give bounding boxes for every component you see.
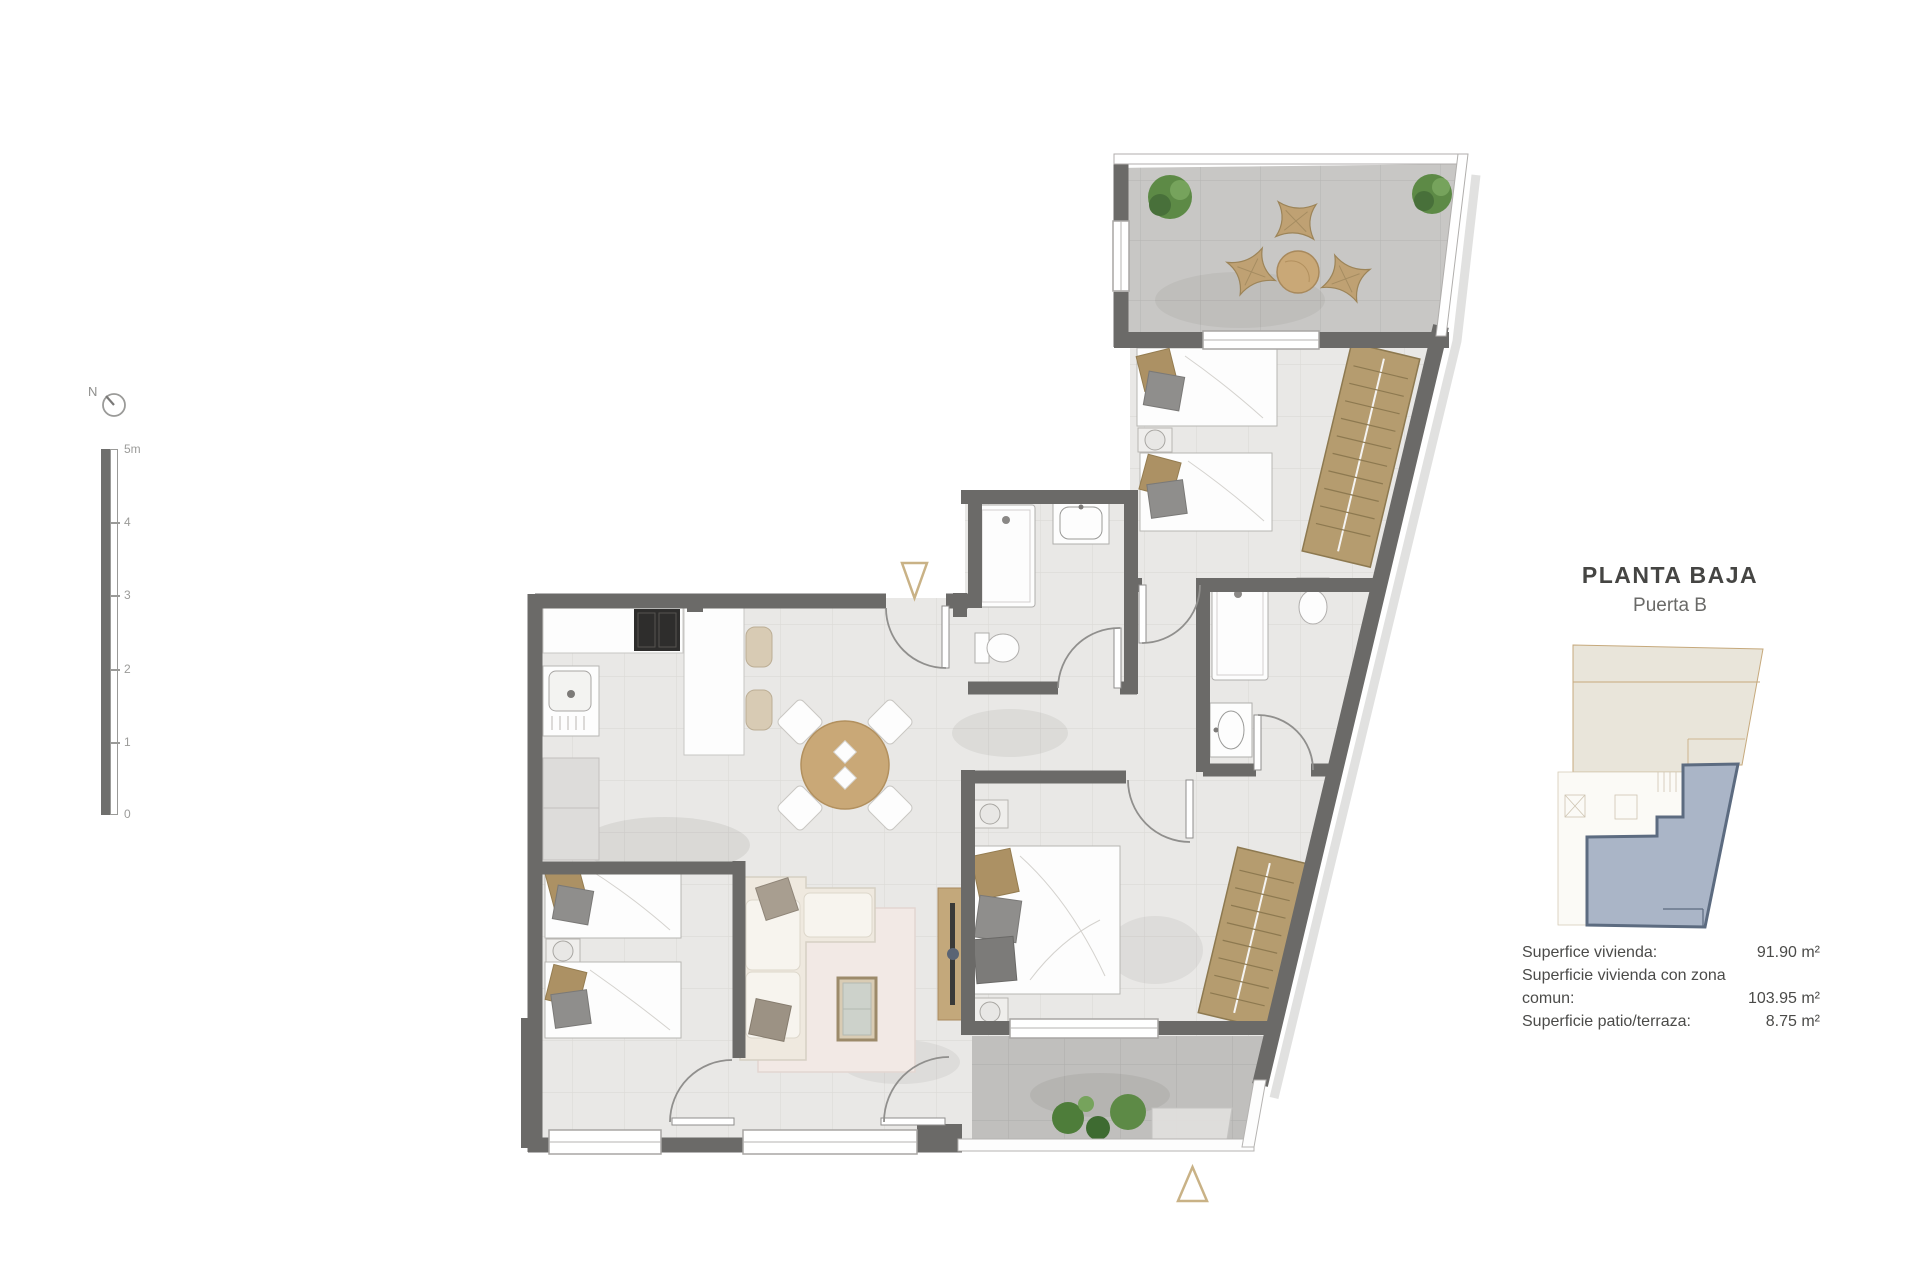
area-row: Superficie patio/terraza: 8.75 m² <box>1522 1010 1820 1033</box>
area-value: 8.75 m² <box>1766 1010 1820 1033</box>
area-value: 103.95 m² <box>1748 987 1820 1010</box>
area-label: Superfice vivienda: <box>1522 941 1730 964</box>
page-subtitle: Puerta B <box>1540 595 1800 617</box>
compass-icon <box>100 391 128 419</box>
scale-label-3: 3 <box>124 588 131 602</box>
fridge <box>543 758 599 860</box>
area-label: Superficie patio/terraza: <box>1522 1010 1730 1033</box>
north-label: N <box>88 384 97 399</box>
plant-icon <box>1148 175 1192 219</box>
scale-bar: 5m 4 3 2 1 0 <box>101 449 145 815</box>
area-value: 91.90 m² <box>1757 941 1820 964</box>
scale-label-4: 4 <box>124 515 131 529</box>
area-row: Superfice vivienda: 91.90 m² <box>1522 941 1820 964</box>
hob <box>634 609 680 651</box>
coffee-table <box>838 978 876 1040</box>
stool <box>746 690 772 730</box>
scale-bar-fill <box>101 449 110 815</box>
scale-label-5m: 5m <box>124 442 141 456</box>
sink <box>1210 703 1252 757</box>
island <box>684 607 744 755</box>
page-title: PLANTA BAJA <box>1540 562 1800 589</box>
area-summary: Superfice vivienda: 91.90 m² Superficie … <box>1522 941 1820 1033</box>
floor-plan <box>495 140 1495 1220</box>
scale-bar-track <box>110 449 118 815</box>
entrance-marker-icon <box>902 563 927 598</box>
area-row: Superficie vivienda con zona comun: 103.… <box>1522 964 1820 1010</box>
sink <box>543 666 599 736</box>
toilet <box>975 633 1019 663</box>
entrance-marker-icon <box>1178 1167 1207 1201</box>
dining-table <box>801 721 889 809</box>
scale-label-0: 0 <box>124 807 131 821</box>
key-plan <box>1540 620 1800 950</box>
scale-label-1: 1 <box>124 735 131 749</box>
sofa-pillow <box>749 999 792 1042</box>
scale-label-2: 2 <box>124 662 131 676</box>
area-label: Superficie vivienda con zona comun: <box>1522 964 1730 1010</box>
terrace-table <box>1277 251 1319 293</box>
stool <box>746 627 772 667</box>
panel-title-block: PLANTA BAJA Puerta B <box>1540 562 1800 617</box>
plant-icon <box>1412 174 1452 214</box>
